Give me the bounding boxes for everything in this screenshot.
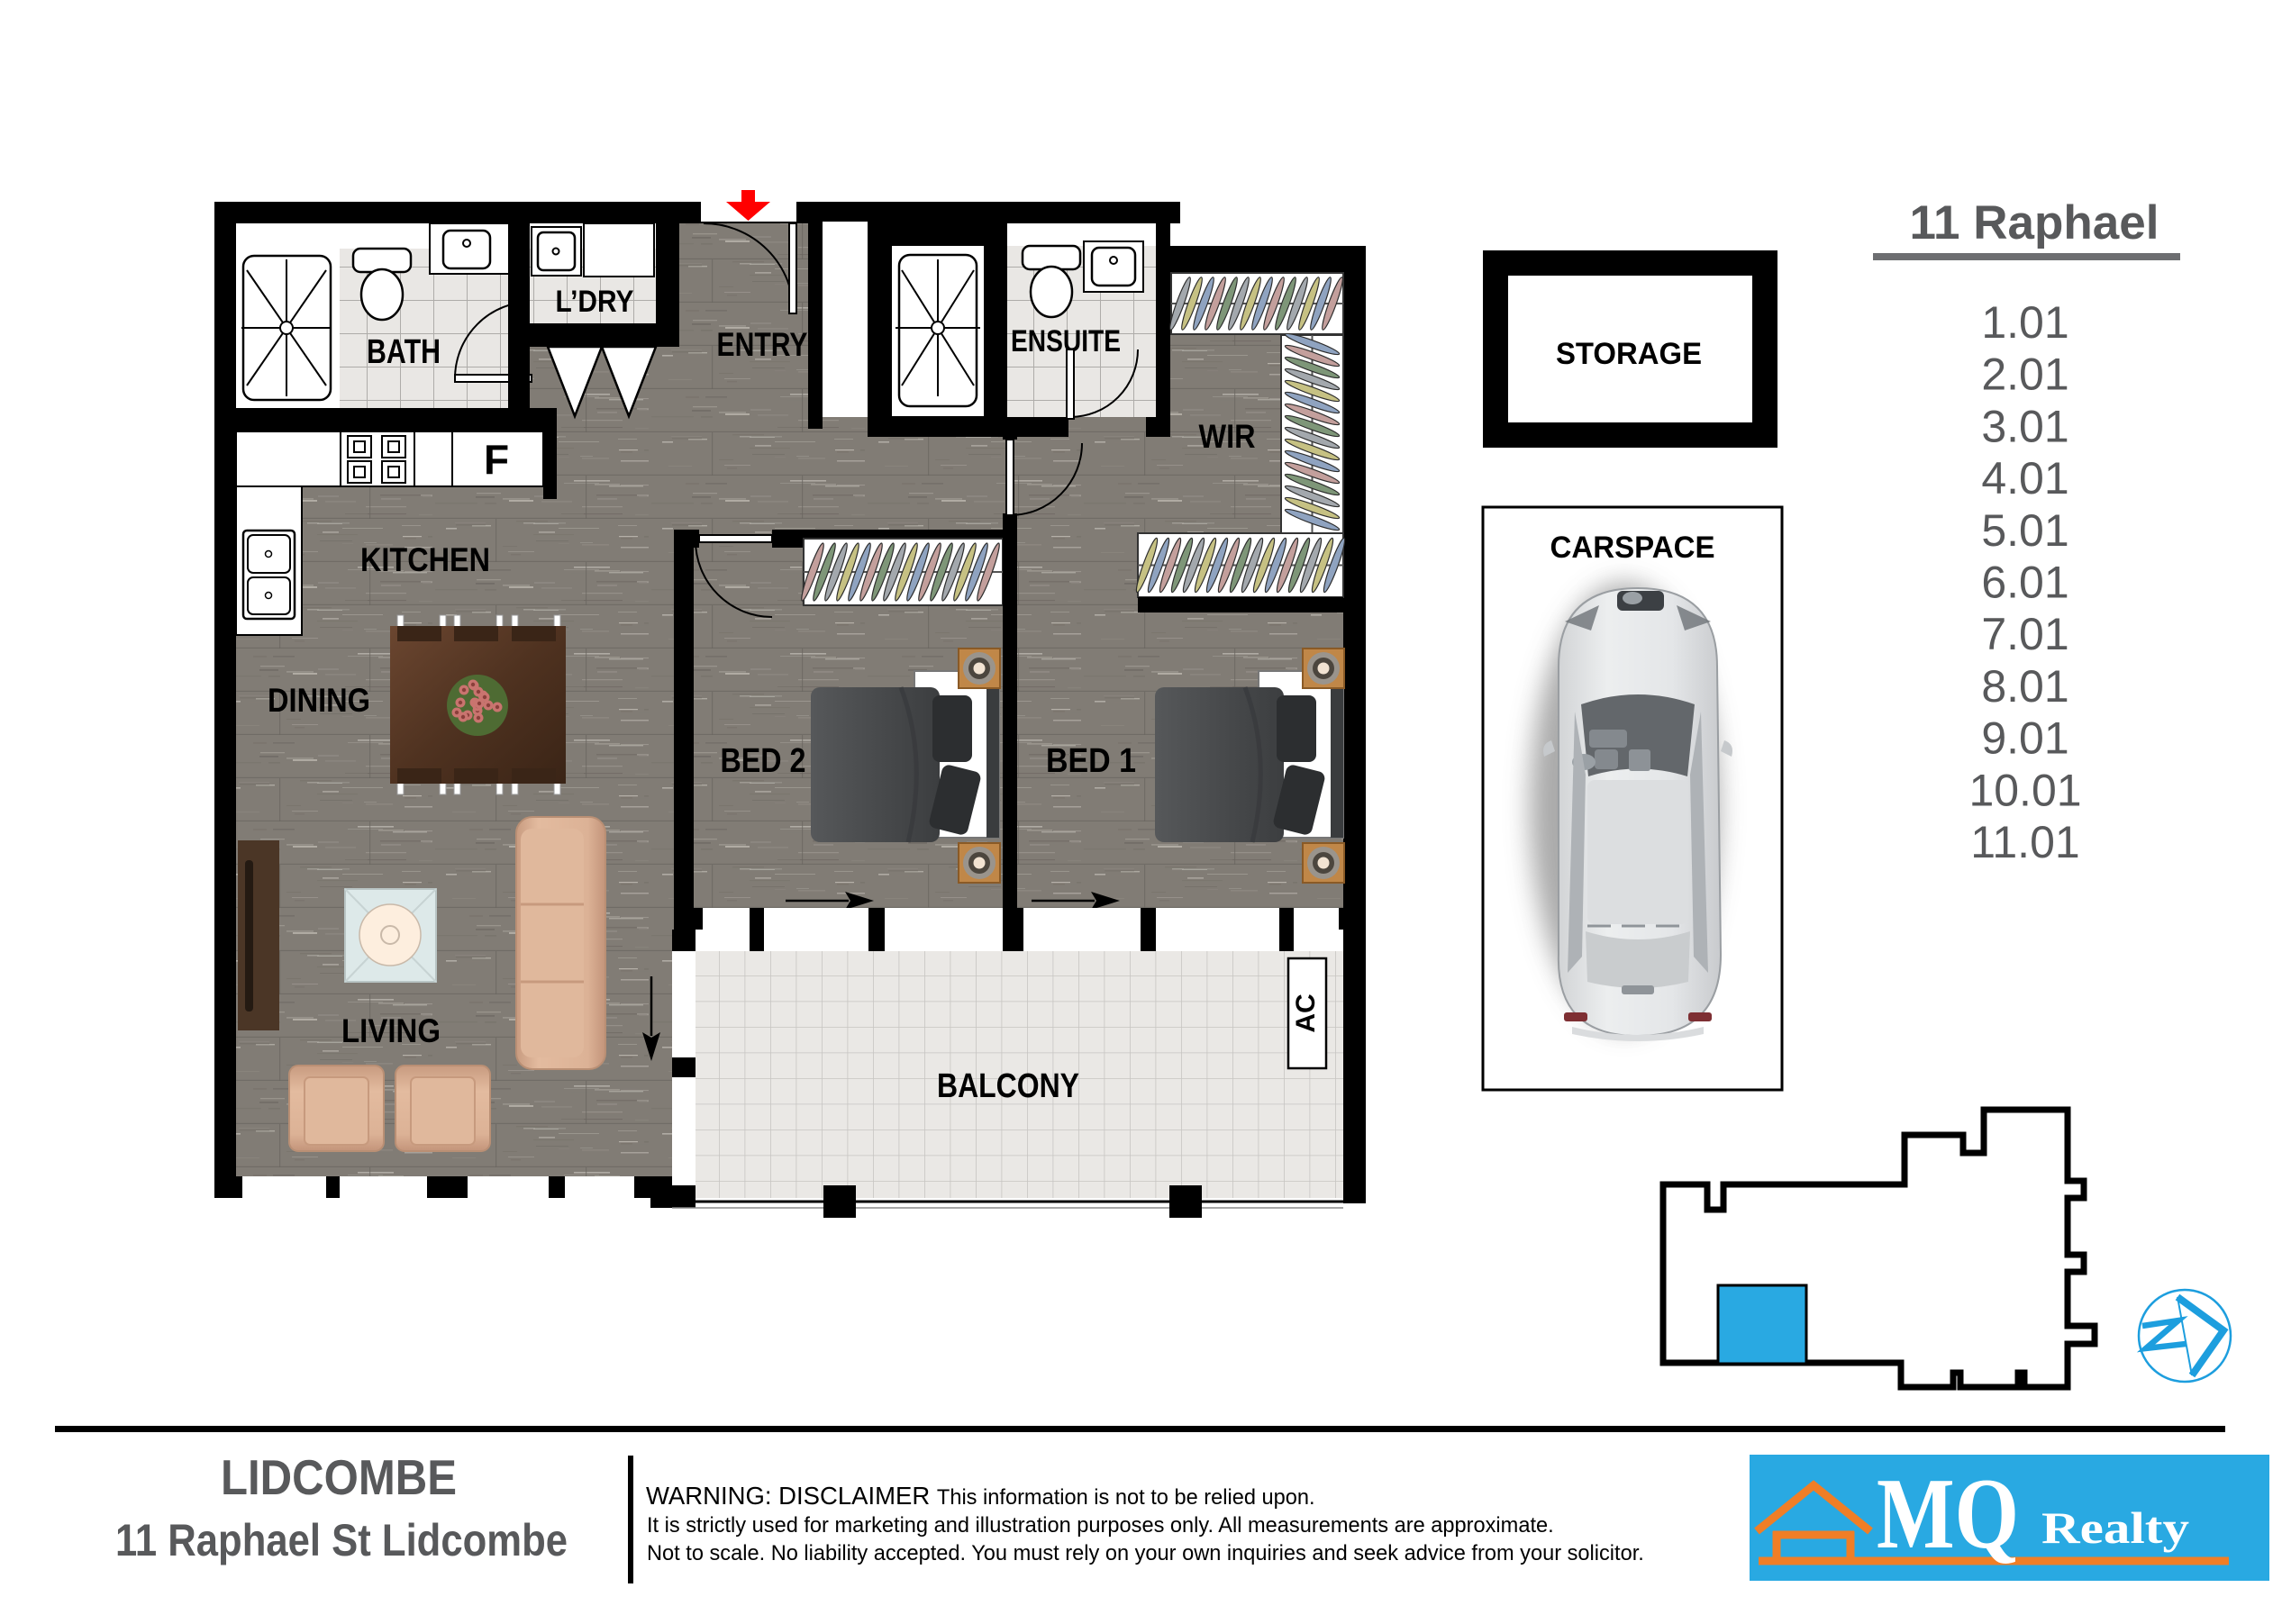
- svg-text:Not to scale. No liability acc: Not to scale. No liability accepted. You…: [647, 1542, 1644, 1565]
- svg-text:WIR: WIR: [1199, 418, 1256, 455]
- svg-text:9.01: 9.01: [1981, 713, 2068, 764]
- svg-text:5.01: 5.01: [1981, 505, 2068, 556]
- svg-text:4.01: 4.01: [1981, 453, 2068, 504]
- svg-text:LIVING: LIVING: [341, 1012, 441, 1049]
- svg-text:11.01: 11.01: [1970, 817, 2079, 867]
- svg-text:11 Raphael St Lidcombe: 11 Raphael St Lidcombe: [115, 1515, 568, 1565]
- svg-text:AC: AC: [1291, 993, 1321, 1032]
- svg-text:F: F: [484, 436, 509, 483]
- svg-text:11 Raphael: 11 Raphael: [1910, 196, 2159, 249]
- svg-text:7.01: 7.01: [1981, 609, 2068, 659]
- svg-text:It is strictly used for market: It is strictly used for marketing and il…: [647, 1514, 1554, 1538]
- svg-text:Realty: Realty: [2041, 1502, 2189, 1553]
- svg-text:10.01: 10.01: [1968, 765, 2081, 815]
- svg-text:ENTRY: ENTRY: [717, 326, 808, 363]
- svg-text:1.01: 1.01: [1981, 297, 2068, 348]
- svg-text:BALCONY: BALCONY: [937, 1067, 1079, 1105]
- svg-text:6.01: 6.01: [1981, 558, 2068, 608]
- svg-text:8.01: 8.01: [1981, 661, 2068, 712]
- svg-text:LIDCOMBE: LIDCOMBE: [221, 1449, 457, 1505]
- svg-text:WARNING: DISCLAIMER This infor: WARNING: DISCLAIMER This information is …: [646, 1482, 1315, 1510]
- svg-text:BED 1: BED 1: [1046, 742, 1136, 780]
- svg-text:L’DRY: L’DRY: [556, 285, 634, 319]
- svg-text:3.01: 3.01: [1981, 401, 2068, 451]
- svg-text:2.01: 2.01: [1981, 349, 2068, 400]
- svg-text:DINING: DINING: [268, 682, 370, 719]
- svg-text:BATH: BATH: [367, 333, 441, 371]
- svg-text:CARSPACE: CARSPACE: [1550, 531, 1715, 565]
- svg-text:STORAGE: STORAGE: [1556, 337, 1702, 371]
- svg-text:BED 2: BED 2: [721, 742, 806, 780]
- svg-text:MQ: MQ: [1877, 1458, 2019, 1570]
- svg-text:KITCHEN: KITCHEN: [360, 541, 490, 578]
